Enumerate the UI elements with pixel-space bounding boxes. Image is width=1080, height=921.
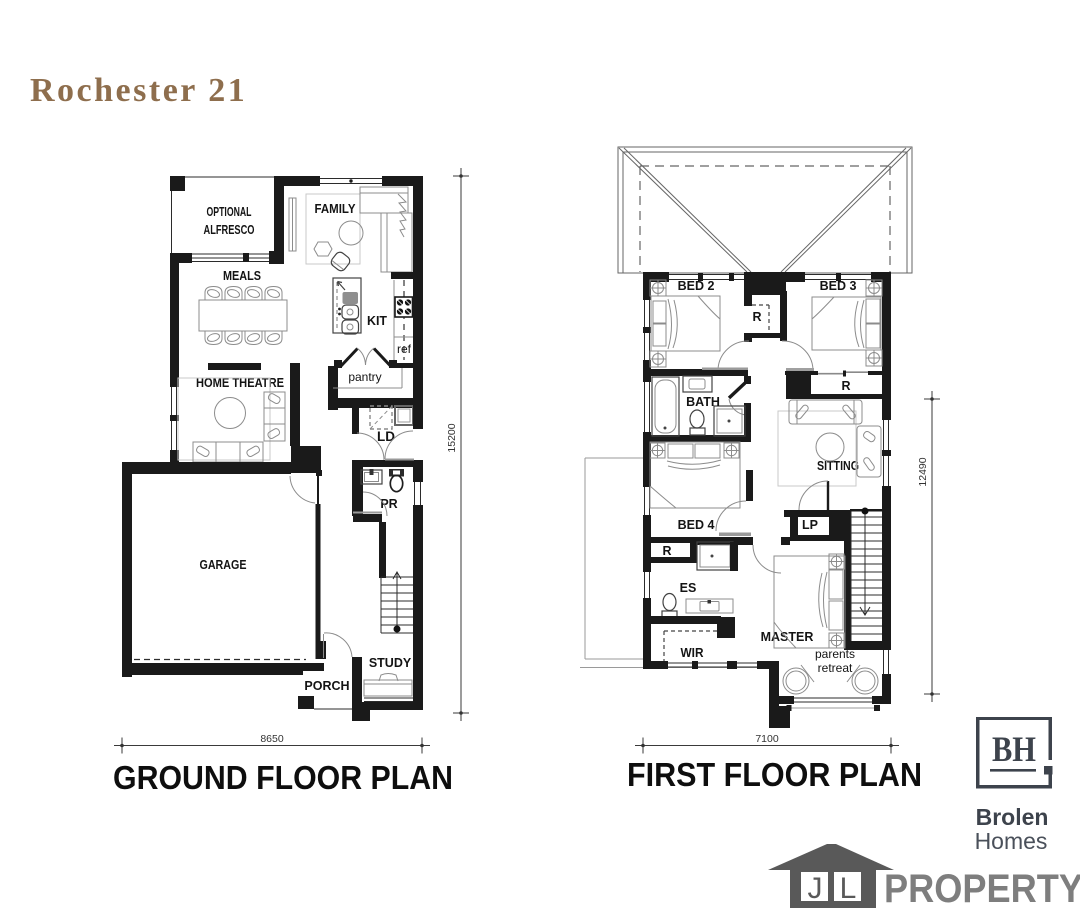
svg-text:retreat: retreat [818, 661, 853, 675]
svg-text:Brolen: Brolen [976, 804, 1049, 830]
svg-text:15200: 15200 [446, 423, 458, 452]
svg-text:GROUND FLOOR PLAN: GROUND FLOOR PLAN [113, 759, 453, 796]
svg-text:12490: 12490 [917, 457, 929, 486]
svg-text:FIRST FLOOR PLAN: FIRST FLOOR PLAN [627, 756, 922, 793]
svg-text:STUDY: STUDY [369, 656, 412, 670]
svg-text:parents: parents [815, 647, 855, 661]
svg-text:LD: LD [377, 429, 395, 444]
svg-text:GARAGE: GARAGE [200, 558, 247, 572]
svg-text:BED 4: BED 4 [678, 518, 715, 532]
svg-text:J: J [808, 872, 823, 905]
svg-text:BATH: BATH [686, 395, 720, 409]
svg-text:BED 2: BED 2 [678, 279, 715, 293]
svg-text:MASTER: MASTER [761, 630, 814, 644]
svg-text:MEALS: MEALS [223, 269, 261, 283]
svg-text:PORCH: PORCH [304, 679, 349, 693]
svg-text:ALFRESCO: ALFRESCO [204, 223, 255, 237]
svg-text:PR: PR [380, 497, 397, 511]
svg-text:8650: 8650 [260, 733, 284, 745]
svg-text:pantry: pantry [348, 370, 381, 384]
svg-text:R: R [752, 310, 761, 324]
svg-text:L: L [840, 872, 857, 905]
svg-text:LP: LP [802, 518, 818, 532]
svg-text:KIT: KIT [367, 314, 387, 328]
svg-text:R: R [841, 379, 850, 393]
svg-text:Homes: Homes [975, 828, 1048, 854]
svg-text:ES: ES [680, 581, 697, 595]
svg-text:PROPERTY: PROPERTY [884, 867, 1080, 911]
svg-text:BH: BH [992, 729, 1036, 769]
svg-text:WIR: WIR [681, 646, 704, 660]
svg-text:R: R [662, 544, 671, 558]
svg-text:ref: ref [397, 342, 412, 356]
svg-text:7100: 7100 [755, 733, 779, 745]
svg-text:OPTIONAL: OPTIONAL [207, 205, 252, 219]
svg-text:BED 3: BED 3 [820, 279, 857, 293]
svg-text:FAMILY: FAMILY [315, 202, 357, 216]
svg-text:SITTING: SITTING [817, 459, 859, 473]
